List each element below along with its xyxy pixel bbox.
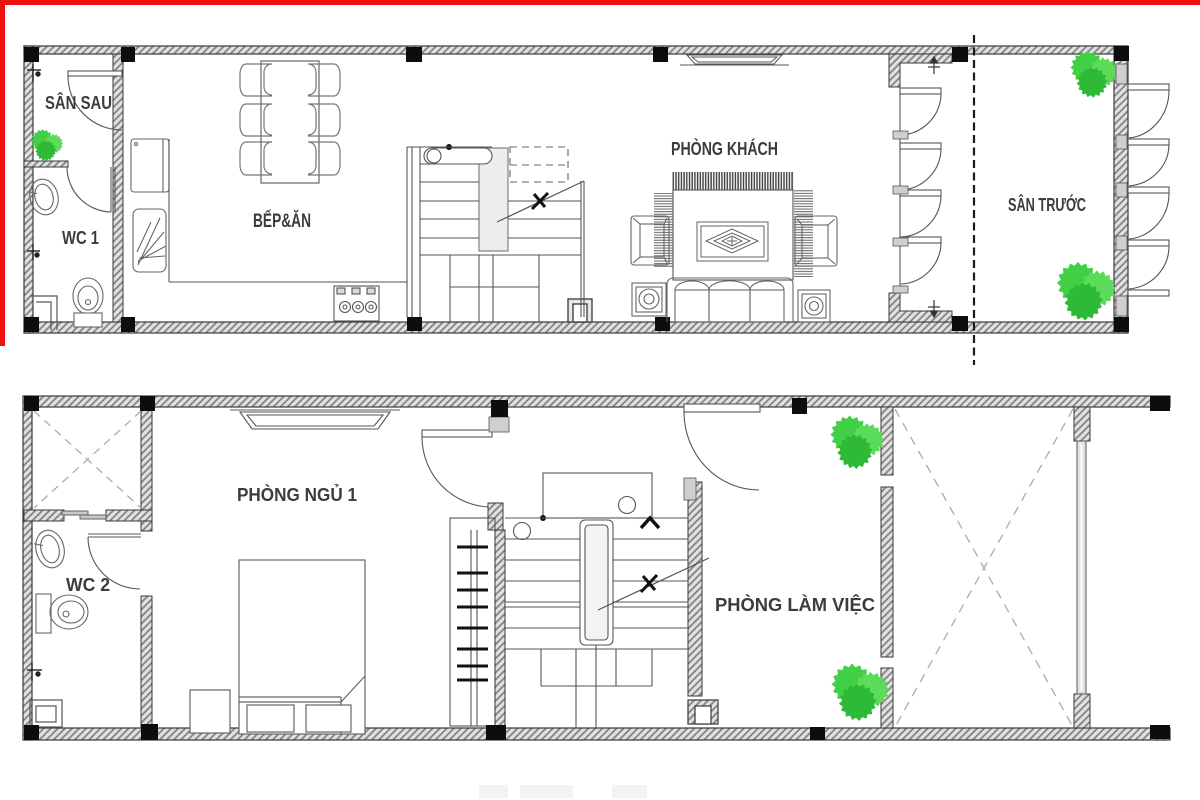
svg-text:PHÒNG KHÁCH: PHÒNG KHÁCH bbox=[671, 138, 778, 159]
svg-text:SÂN TRƯỚC: SÂN TRƯỚC bbox=[1008, 194, 1086, 215]
svg-text:PHÒNG LÀM VIỆC: PHÒNG LÀM VIỆC bbox=[715, 594, 875, 615]
svg-text:WC 1: WC 1 bbox=[62, 228, 99, 248]
svg-text:PHÒNG NGỦ 1: PHÒNG NGỦ 1 bbox=[237, 484, 357, 505]
svg-text:SÂN SAU: SÂN SAU bbox=[45, 92, 112, 113]
svg-text:BẾP&ĂN: BẾP&ĂN bbox=[253, 210, 311, 232]
svg-text:WC 2: WC 2 bbox=[66, 575, 110, 595]
